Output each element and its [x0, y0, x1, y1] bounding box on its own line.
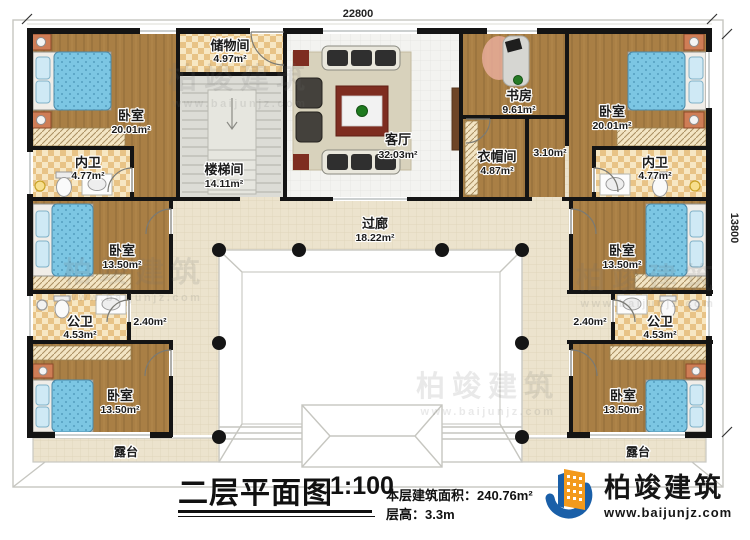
floor-plan: 柏竣建筑 www.baijunjz.com 柏竣建筑 www.baijunjz.…	[0, 0, 750, 535]
svg-text:13.50m²: 13.50m²	[603, 404, 643, 416]
wardrobe-bot-left	[33, 346, 131, 360]
floor-area-value: 240.76m²	[477, 488, 533, 503]
label-living: 客厅	[385, 132, 411, 147]
watermark-url: www.baijunjz.com	[580, 298, 716, 310]
title-underline-thick	[178, 510, 372, 513]
label-hall-240r: 2.40m²	[573, 316, 607, 328]
dimension-right: 13800	[728, 213, 740, 244]
dimension-top: 22800	[343, 8, 374, 20]
closet-wardrobe-strip	[465, 121, 478, 195]
watermark-url: www.baijunjz.com	[420, 406, 556, 418]
svg-text:20.01m²: 20.01m²	[111, 124, 151, 136]
label-bedroom-tl: 卧室	[118, 108, 144, 123]
floor-height-label: 层高：	[386, 507, 425, 522]
plan-stats: 本层建筑面积：240.76m² 层高：3.3m	[386, 486, 533, 524]
courtyard-roof	[219, 250, 522, 467]
watermark-text: 柏竣建筑	[576, 261, 720, 295]
svg-text:4.53m²: 4.53m²	[643, 329, 677, 341]
plant-icon	[357, 106, 368, 117]
watermark-text: 柏竣建筑	[416, 369, 560, 403]
label-bath-tl: 内卫	[75, 155, 101, 170]
label-bedroom-br: 卧室	[610, 388, 636, 403]
label-bath-tr: 内卫	[642, 155, 668, 170]
label-study: 书房	[506, 88, 532, 103]
tv-cabinet	[452, 88, 460, 150]
plan-scale: 1:100	[330, 472, 394, 501]
svg-text:9.61m²: 9.61m²	[502, 104, 536, 116]
wardrobe-bot-right	[610, 346, 706, 360]
svg-text:13.50m²: 13.50m²	[102, 259, 142, 271]
svg-text:14.11m²: 14.11m²	[205, 178, 244, 190]
svg-text:13.50m²: 13.50m²	[602, 259, 642, 271]
terrace-right	[522, 438, 706, 462]
brand-name: 柏竣建筑	[604, 466, 732, 505]
svg-text:18.22m²: 18.22m²	[355, 232, 395, 244]
label-storage: 储物间	[209, 38, 249, 53]
label-bedroom-mr: 卧室	[609, 243, 635, 258]
toilet-icon	[57, 178, 72, 197]
svg-text:4.87m²: 4.87m²	[480, 165, 514, 177]
label-bedroom-bl: 卧室	[107, 388, 133, 403]
label-terrace-r: 露台	[626, 444, 650, 459]
svg-text:20.01m²: 20.01m²	[592, 120, 632, 132]
label-terrace-l: 露台	[114, 444, 138, 459]
plant-icon	[514, 76, 523, 85]
label-bedroom-tr: 卧室	[599, 104, 625, 119]
label-stairs: 楼梯间	[204, 162, 243, 177]
watermark-text: 柏竣建筑	[168, 61, 312, 95]
svg-text:13.50m²: 13.50m²	[100, 404, 140, 416]
brand-logo-icon	[540, 462, 596, 524]
bedroom-tr-entry	[569, 146, 592, 197]
label-bedroom-ml: 卧室	[109, 243, 135, 258]
watermark-url: www.baijunjz.com	[67, 292, 203, 304]
shower-icon	[35, 181, 45, 191]
shower-icon	[37, 300, 47, 310]
floor-height-value: 3.3m	[425, 507, 455, 522]
label-hall-240l: 2.40m²	[133, 316, 167, 328]
label-hall-310: 3.10m²	[533, 147, 567, 159]
floor-area-label: 本层建筑面积：	[386, 488, 477, 503]
svg-text:4.53m²: 4.53m²	[63, 329, 97, 341]
coffee-table	[336, 86, 388, 136]
title-underline-thin	[178, 516, 375, 517]
plan-title: 二层平面图	[178, 468, 333, 512]
side-table-bottom	[293, 154, 309, 170]
svg-text:4.97m²: 4.97m²	[213, 53, 247, 65]
label-closet: 衣帽间	[477, 149, 516, 164]
brand-logo: 柏竣建筑 www.baijunjz.com	[540, 462, 732, 524]
shower-icon	[690, 181, 700, 191]
label-bath-ml: 公卫	[67, 314, 93, 329]
armchair-2	[296, 112, 322, 142]
svg-text:32.03m²: 32.03m²	[378, 149, 418, 161]
svg-text:4.77m²: 4.77m²	[638, 170, 672, 182]
brand-url: www.baijunjz.com	[604, 505, 732, 520]
sofa-top	[322, 46, 400, 70]
label-bath-mr: 公卫	[647, 314, 673, 329]
svg-text:4.77m²: 4.77m²	[71, 170, 105, 182]
label-corridor: 过廊	[362, 216, 388, 231]
watermark-url: www.baijunjz.com	[172, 98, 308, 110]
